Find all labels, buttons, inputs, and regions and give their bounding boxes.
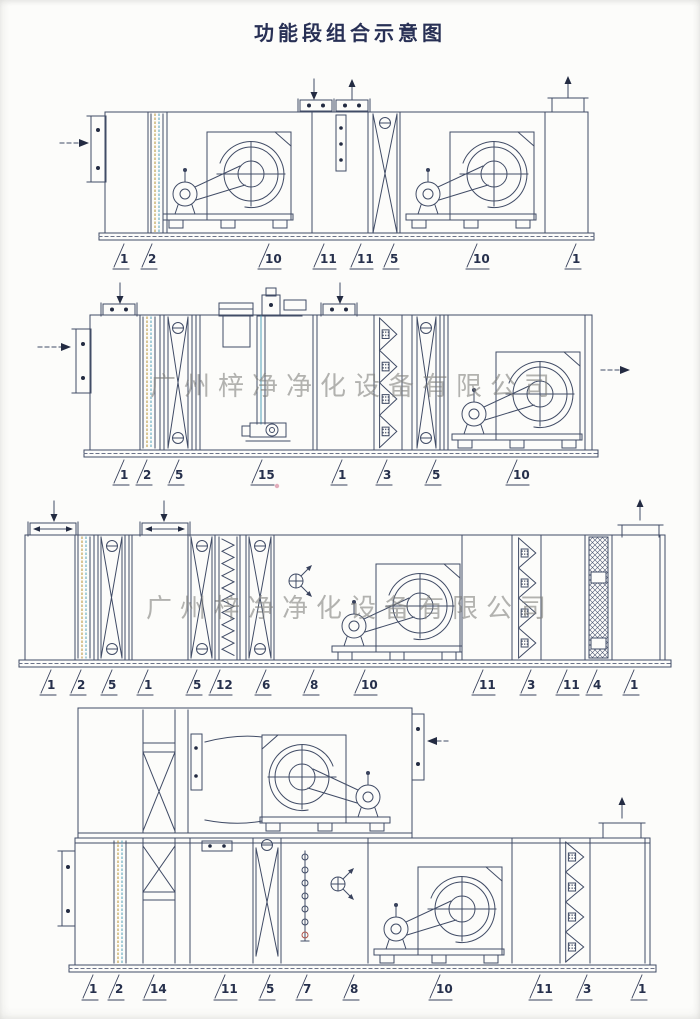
airflow-arrow-icon <box>601 366 630 374</box>
section-callout: 5 <box>186 670 202 695</box>
section-callout: 1 <box>631 975 647 1000</box>
vent-port-icon <box>380 118 391 129</box>
unit-3-drawing: 1 2 5 1 5 12 6 8 10 11 3 11 4 1 <box>19 499 671 695</box>
filter-panel-icon <box>191 537 212 658</box>
section-callout: 3 <box>376 460 392 485</box>
roof-damper-icon <box>298 99 334 112</box>
vent-port-icon <box>421 433 432 444</box>
section-callout: 11 <box>313 244 337 269</box>
inlet-damper-icon <box>91 116 106 182</box>
vent-port-icon <box>255 541 266 552</box>
centrifugal-fan-icon <box>163 132 293 228</box>
section-label: 11 <box>320 252 337 266</box>
section-label: 3 <box>383 468 391 482</box>
section-label: 5 <box>390 252 398 266</box>
section-callout: 2 <box>141 244 157 269</box>
section-callout: 1 <box>82 975 98 1000</box>
airflow-arrow-icon <box>637 499 644 520</box>
bag-filter-icon <box>566 842 584 962</box>
section-callout: 1 <box>331 460 347 485</box>
section-callout: 3 <box>520 670 536 695</box>
section-callout: 7 <box>296 975 312 1000</box>
spray-nozzle-icon <box>331 868 354 900</box>
spray-tree-icon <box>301 851 309 941</box>
vent-port-icon <box>173 433 184 444</box>
unit-4-drawing: 1 2 14 11 5 7 8 10 11 3 1 <box>58 708 656 1000</box>
section-label: 5 <box>266 982 274 996</box>
bag-filter-icon <box>519 538 536 658</box>
section-callout: 10 <box>506 460 530 485</box>
section-label: 6 <box>262 678 270 692</box>
section-callout: 1 <box>137 670 153 695</box>
section-label: 5 <box>175 468 183 482</box>
section-label: 14 <box>150 982 167 996</box>
section-label: 10 <box>473 252 490 266</box>
airflow-arrow-icon <box>161 501 168 522</box>
internal-damper-icon <box>191 734 202 790</box>
airflow-arrow-icon <box>38 343 71 351</box>
section-label: 1 <box>630 678 638 692</box>
section-label: 2 <box>143 468 151 482</box>
filter-panel-icon <box>249 537 271 658</box>
section-callout: 10 <box>429 975 453 1000</box>
section-callout: 5 <box>383 244 399 269</box>
vent-port-icon <box>262 840 273 851</box>
inlet-damper-icon <box>76 329 91 393</box>
section-label: 10 <box>436 982 453 996</box>
vent-port-icon <box>107 541 118 552</box>
section-label: 1 <box>338 468 346 482</box>
coil-strip-icon <box>151 114 163 233</box>
outlet-collar-icon <box>599 823 645 838</box>
unit-2-drawing: 1 2 5 15 1 3 5 10 <box>38 283 630 488</box>
section-callout: 1 <box>623 670 639 695</box>
section-callout: 5 <box>101 670 117 695</box>
section-callout: 11 <box>214 975 238 1000</box>
section-label: 10 <box>513 468 530 482</box>
airflow-arrow-icon <box>619 797 626 818</box>
centrifugal-fan-icon <box>260 735 390 831</box>
coil-strip-icon <box>114 841 126 963</box>
section-label: 2 <box>148 252 156 266</box>
section-label: 1 <box>120 468 128 482</box>
outlet-collar-icon <box>548 98 588 112</box>
humidifier-section-internals <box>223 316 290 441</box>
section-label: 3 <box>583 982 591 996</box>
section-label: 5 <box>108 678 116 692</box>
section-callout: 5 <box>168 460 184 485</box>
unit-3-casing <box>25 535 665 660</box>
section-callout: 2 <box>108 975 124 1000</box>
humidifier-top-unit <box>219 288 306 316</box>
section-label: 11 <box>479 678 496 692</box>
section-callout: 4 <box>586 670 602 695</box>
section-callout: 3 <box>576 975 592 1000</box>
section-label: 2 <box>77 678 85 692</box>
roof-damper-icon <box>321 303 357 316</box>
section-callout: 8 <box>343 975 359 1000</box>
roof-damper-icon <box>334 99 370 112</box>
section-label: 8 <box>350 982 358 996</box>
section-callout: 1 <box>113 244 129 269</box>
roof-damper-icon <box>101 303 137 316</box>
centrifugal-fan-icon <box>374 867 504 963</box>
section-callout: 11 <box>556 670 580 695</box>
vent-port-icon <box>197 644 208 655</box>
centrifugal-fan-icon <box>332 564 462 660</box>
vent-port-icon <box>173 323 184 334</box>
unit-2-casing <box>90 315 592 450</box>
spray-nozzle-icon <box>289 565 312 597</box>
filter-panel-icon <box>168 317 188 448</box>
bag-filter-icon <box>380 318 397 448</box>
section-label: 11 <box>357 252 374 266</box>
section-label: 1 <box>638 982 646 996</box>
section-callout: 11 <box>472 670 496 695</box>
section-label: 3 <box>527 678 535 692</box>
section-label: 1 <box>47 678 55 692</box>
section-label: 1 <box>144 678 152 692</box>
section-label: 12 <box>216 678 233 692</box>
section-label: 4 <box>593 678 601 692</box>
section-callout: 10 <box>466 244 490 269</box>
unit-4-lower-casing <box>75 838 650 965</box>
filter-panel-icon <box>101 537 122 658</box>
centrifugal-fan-icon <box>452 352 582 448</box>
unit-2-base-rail <box>84 450 598 457</box>
airflow-arrow-icon <box>60 139 89 147</box>
section-label: 1 <box>89 982 97 996</box>
airflow-arrow-icon <box>565 76 572 97</box>
section-callout: 2 <box>136 460 152 485</box>
unit-4-upper-casing <box>78 708 412 838</box>
unit-1-drawing: 1 2 10 11 11 5 10 1 <box>60 76 594 269</box>
section-label: 2 <box>115 982 123 996</box>
section-label: 1 <box>120 252 128 266</box>
section-callout: 14 <box>143 975 167 1000</box>
return-damper-icon <box>412 714 424 780</box>
section-callout: 8 <box>303 670 319 695</box>
section-label: 15 <box>258 468 275 482</box>
section-label: 11 <box>221 982 238 996</box>
filter-panel-icon <box>417 317 436 448</box>
airflow-arrow-icon <box>51 501 58 522</box>
section-label: 11 <box>536 982 553 996</box>
airflow-arrow-icon <box>311 79 318 100</box>
vent-port-icon <box>421 323 432 334</box>
section-label: 5 <box>193 678 201 692</box>
airflow-arrow-icon <box>117 283 124 304</box>
section-callout: 10 <box>354 670 378 695</box>
humidifier-media-icon <box>219 537 237 659</box>
section-callout: 1 <box>113 460 129 485</box>
section-callout: 10 <box>258 244 282 269</box>
scanned-page: 功能段组合示意图 <box>0 0 700 1019</box>
roof-damper-icon <box>140 522 190 536</box>
section-callout: 1 <box>40 670 56 695</box>
section-callout: 11 <box>529 975 553 1000</box>
section-callout: 1 <box>565 244 581 269</box>
centrifugal-fan-icon <box>406 132 536 228</box>
inlet-damper-icon <box>62 851 75 926</box>
section-label: 11 <box>563 678 580 692</box>
filter-panel-icon <box>256 848 278 956</box>
section-label: 8 <box>310 678 318 692</box>
scan-mark <box>275 484 279 488</box>
section-label: 10 <box>361 678 378 692</box>
vent-port-icon <box>197 541 208 552</box>
vent-port-icon <box>255 644 266 655</box>
roof-damper-icon <box>28 522 78 536</box>
section-label: 5 <box>432 468 440 482</box>
page-title: 功能段组合示意图 <box>0 17 700 46</box>
airflow-arrow-icon <box>337 283 344 304</box>
section-label: 7 <box>303 982 311 996</box>
filter-panel-icon <box>373 114 397 233</box>
airflow-arrow-icon <box>349 79 356 100</box>
section-callout: 5 <box>259 975 275 1000</box>
section-callout: 6 <box>255 670 271 695</box>
coil-strip-icon <box>78 537 90 658</box>
section-callout: 11 <box>350 244 374 269</box>
section-callout: 15 <box>251 460 275 485</box>
section-callout: 5 <box>425 460 441 485</box>
airflow-arrow-icon <box>427 737 448 745</box>
section-callout: 12 <box>209 670 233 695</box>
coil-strip-icon <box>143 317 155 448</box>
section-label: 10 <box>265 252 282 266</box>
schematic-canvas: 1 2 10 11 11 5 10 1 <box>0 0 700 1019</box>
section-label: 1 <box>572 252 580 266</box>
section-callout: 2 <box>70 670 86 695</box>
vent-port-icon <box>107 644 118 655</box>
